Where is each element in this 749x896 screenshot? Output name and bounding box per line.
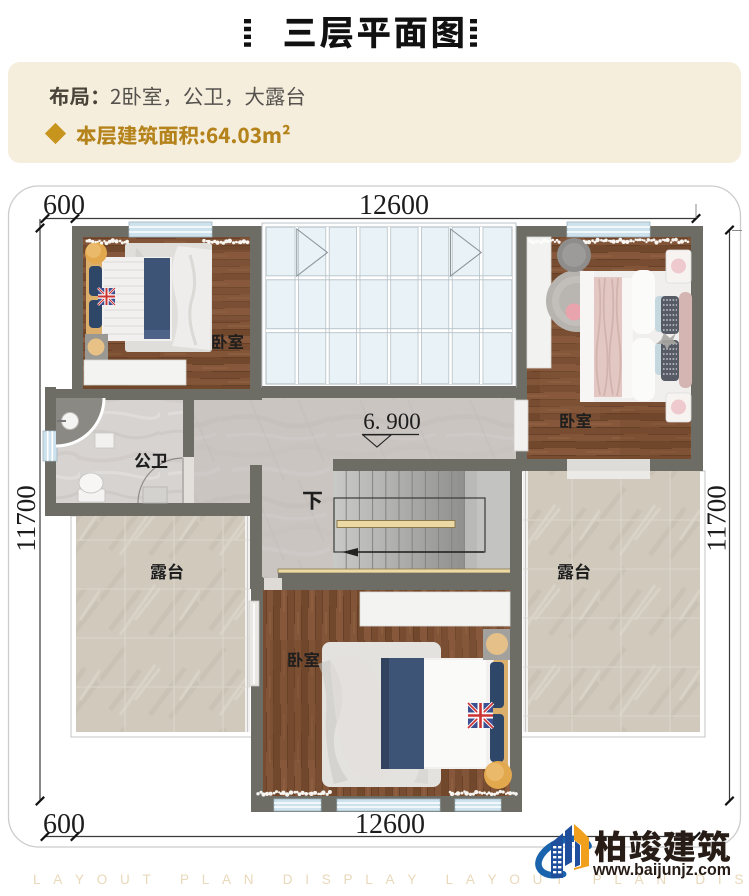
svg-text:12600: 12600 (359, 190, 429, 221)
svg-text:11700: 11700 (11, 485, 41, 552)
svg-text:600: 600 (43, 190, 85, 221)
svg-text:www.baijunjz.com: www.baijunjz.com (592, 860, 731, 879)
svg-text:12600: 12600 (355, 809, 425, 840)
svg-text:11700: 11700 (702, 485, 732, 552)
svg-text:6. 900: 6. 900 (363, 409, 421, 434)
svg-text:600: 600 (43, 809, 85, 840)
